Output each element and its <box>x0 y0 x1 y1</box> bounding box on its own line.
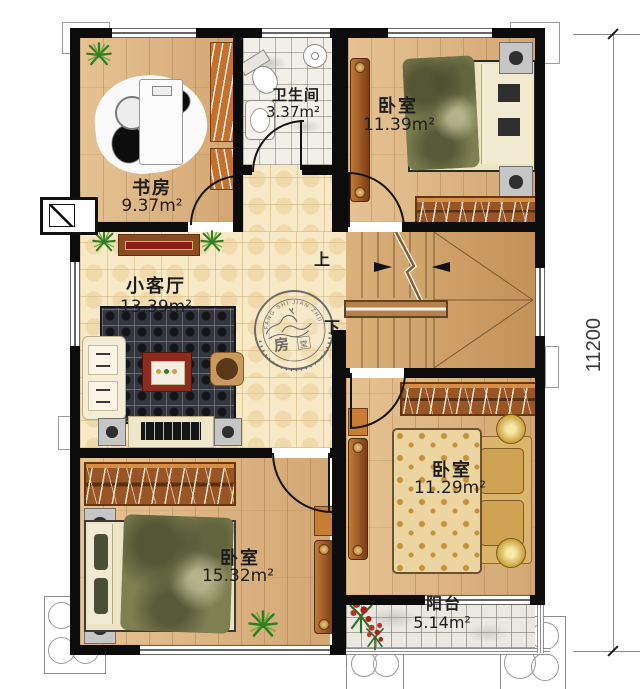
pillow <box>498 84 520 102</box>
wall <box>70 346 80 655</box>
open-closet <box>400 382 538 416</box>
wall <box>196 28 262 38</box>
cushion <box>480 448 524 494</box>
living-room-area: 13.39m² <box>120 297 192 317</box>
wall <box>243 165 252 175</box>
stairs-down-label: 下 <box>324 314 340 338</box>
nightstand <box>499 42 533 74</box>
coffee-table <box>142 352 192 392</box>
stairs-up-label: 上 <box>314 246 330 270</box>
wall <box>330 448 346 458</box>
door-leaf <box>300 120 302 170</box>
stamp-char-main: 房 <box>273 335 290 355</box>
bedroom-top-right-area: 11.39m² <box>363 115 435 135</box>
window <box>535 268 545 336</box>
bathroom-label: 卫生间 <box>272 84 320 105</box>
balcony-railing-right <box>537 605 544 653</box>
balcony-label: 阳台 <box>426 590 462 614</box>
wall <box>238 222 243 232</box>
desk-lamp <box>152 86 172 96</box>
balcony-area: 5.14m² <box>413 613 471 632</box>
pillow <box>94 578 108 614</box>
wall <box>332 378 346 655</box>
wall <box>233 38 243 232</box>
sofa <box>82 336 126 420</box>
flue-inner <box>49 204 75 227</box>
dimension-label: 11200 <box>582 305 606 385</box>
wall <box>332 368 350 378</box>
pillow <box>498 118 520 136</box>
living-room-label: 小客厅 <box>126 272 186 298</box>
wall <box>332 595 425 605</box>
floor-lamp <box>496 414 526 444</box>
nightstand <box>499 166 533 198</box>
window <box>70 262 80 346</box>
wall <box>332 222 348 232</box>
door-leaf <box>350 373 352 427</box>
hallway-floor <box>243 165 332 232</box>
wall <box>332 38 348 232</box>
pillow <box>94 534 108 570</box>
bathroom-area: 3.37m² <box>266 103 320 121</box>
window <box>262 28 330 38</box>
potted-plant-icon <box>86 42 112 68</box>
wall <box>530 595 545 605</box>
open-closet <box>84 462 236 506</box>
stair-direction-arrow <box>432 262 450 272</box>
wall <box>404 368 545 378</box>
stair-handrail <box>344 300 448 318</box>
bookshelf <box>210 42 235 142</box>
side-table <box>210 352 244 386</box>
wall <box>70 448 272 458</box>
potted-plant-icon <box>248 610 278 640</box>
wall <box>70 645 140 655</box>
wall <box>302 165 332 175</box>
speaker <box>214 418 242 446</box>
bed-headboard <box>481 64 532 164</box>
wall <box>330 28 388 38</box>
tall-cabinet <box>348 438 368 560</box>
desk <box>139 79 183 165</box>
wall <box>402 222 545 232</box>
dimension-extension-bottom <box>573 651 640 652</box>
bedroom-bottom-left-area: 15.32m² <box>202 566 274 586</box>
wall <box>535 28 545 268</box>
stair-direction-arrow <box>374 262 392 272</box>
dimension-line-vertical <box>613 34 614 651</box>
tv <box>141 422 201 440</box>
study-area: 9.37m² <box>121 196 182 216</box>
speaker <box>98 418 126 446</box>
shower-head <box>303 44 327 68</box>
dimension-extension-top <box>573 34 640 35</box>
floor-lamp <box>496 538 526 568</box>
window <box>388 28 492 38</box>
door-leaf <box>328 453 330 511</box>
tv-console <box>128 416 214 448</box>
flue-box <box>40 197 98 235</box>
flower-plant-icon <box>362 622 388 652</box>
ledge-right <box>545 346 559 388</box>
console-table <box>118 234 200 256</box>
bedroom-bottom-right-area: 11.29m² <box>414 478 486 498</box>
quilt <box>392 428 482 574</box>
tall-cabinet <box>314 540 334 634</box>
window <box>140 645 330 655</box>
stamp-char-sub: 堂 <box>299 338 308 349</box>
door-leaf <box>348 172 350 227</box>
window <box>112 28 196 38</box>
floor-plan: 11200 书房 9.37m² 卫生间 3.37m² 卧室 11.39m² <box>0 0 640 689</box>
potted-plant-icon <box>200 230 224 254</box>
